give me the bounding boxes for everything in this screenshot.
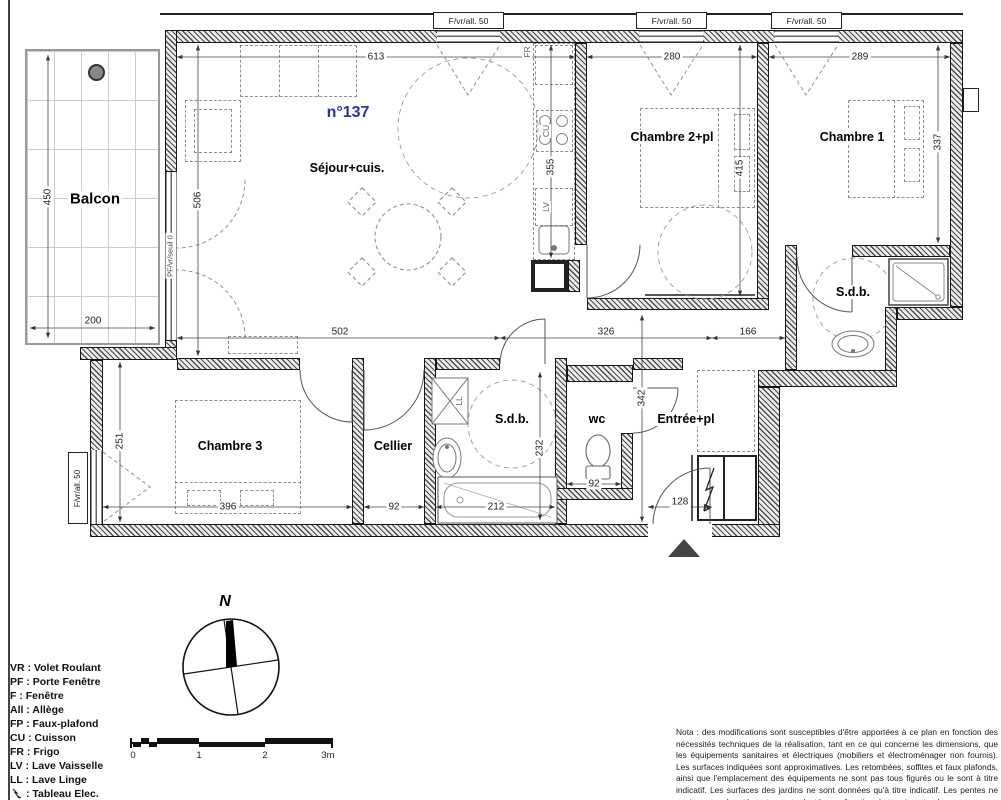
room-label-sdb2: S.d.b. [493, 412, 531, 426]
dim-kitchen-height: 355 [546, 157, 557, 178]
dim-chambre1-width: 289 [850, 52, 871, 63]
dim-wc-width: 92 [586, 479, 601, 490]
lightning-icon [10, 788, 24, 800]
room-label-entree: Entrée+pl [655, 412, 716, 426]
dimension-lines [30, 45, 950, 522]
plan-drawing-layer [0, 0, 1001, 800]
fridge-label: FR [522, 45, 532, 58]
legend-item: F : Fenêtre [10, 690, 64, 702]
scale-tick-3: 3m [321, 750, 334, 761]
dishwasher-label: LV [541, 201, 551, 213]
dim-hall-width: 326 [596, 327, 617, 338]
door-arcs [300, 245, 852, 524]
dim-balcon-height: 450 [43, 187, 54, 208]
room-label-sdb1: S.d.b. [834, 285, 872, 299]
dim-chambre1-height: 337 [933, 132, 944, 153]
dim-sejour-height: 506 [193, 190, 204, 211]
room-label-wc: wc [587, 412, 608, 426]
note-text: Nota : des modifications sont susceptibl… [676, 727, 998, 800]
unit-number: n°137 [325, 104, 372, 122]
balcony-door-label: PF/vr/seuil 0 [166, 233, 175, 279]
room-label-cellier: Cellier [372, 439, 414, 453]
dim-sejour-width: 613 [366, 52, 387, 63]
room-label-chambre3: Chambre 3 [196, 439, 265, 453]
legend-item: PF : Porte Fenêtre [10, 676, 100, 688]
dim-chambre2-width: 280 [662, 52, 683, 63]
legend-item: VR : Volet Roulant [10, 662, 101, 674]
legend-item: LL : Lave Linge [10, 774, 87, 786]
room-label-balcon: Balcon [68, 191, 122, 208]
north-label: N [219, 593, 231, 611]
scale-tick-0: 0 [130, 750, 135, 761]
dim-chambre2-height: 415 [735, 158, 746, 179]
dim-sdb2-height: 232 [535, 438, 546, 459]
legend-item-tableau: : Tableau Elec. [10, 788, 99, 800]
dim-entree-height: 342 [637, 388, 648, 409]
dim-sejour-lower: 502 [330, 327, 351, 338]
dim-hall-right: 166 [738, 327, 759, 338]
legend-item-text: : Tableau Elec. [26, 788, 99, 800]
dining-table [348, 188, 466, 286]
entrance-arrow-icon [668, 539, 700, 557]
toilet [586, 435, 610, 479]
washer-label: LL [454, 395, 464, 406]
room-label-chambre2: Chambre 2+pl [628, 130, 715, 144]
bathtub [438, 477, 557, 523]
sink [433, 438, 461, 478]
dim-chambre3-height: 251 [115, 431, 126, 452]
legend-item: LV : Lave Vaisselle [10, 760, 103, 772]
dim-entree-door: 128 [670, 497, 691, 508]
north-compass-icon [183, 619, 279, 715]
electric-panel-icon [704, 468, 714, 511]
legend-item: CU : Cuisson [10, 732, 76, 744]
dim-chambre3-width: 396 [218, 502, 239, 513]
floor-plan: F/vr/all. 50 F/vr/all. 50 F/vr/all. 50 F… [0, 0, 1001, 800]
scale-tick-1: 1 [196, 750, 201, 761]
sink [832, 331, 874, 357]
room-label-sejour: Séjour+cuis. [308, 161, 387, 175]
legend-item: All : Allège [10, 704, 64, 716]
scale-tick-2: 2 [262, 750, 267, 761]
legend-item: FP : Faux-plafond [10, 718, 98, 730]
dim-bathtub-width: 212 [486, 502, 507, 513]
kitchen-sink [539, 226, 569, 254]
cooktop-label: CU [541, 124, 551, 138]
dim-balcon-width: 200 [83, 316, 104, 327]
shower [889, 259, 948, 305]
dim-cellier-width: 92 [386, 502, 401, 513]
legend-item: FR : Frigo [10, 746, 60, 758]
room-label-chambre1: Chambre 1 [818, 130, 887, 144]
